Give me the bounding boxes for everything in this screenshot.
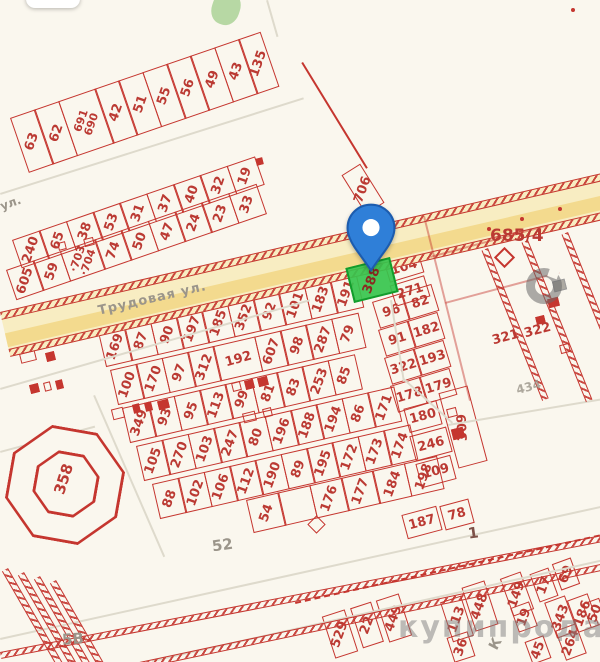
parcel-number: 32 xyxy=(208,174,228,196)
parcel-number: 33 xyxy=(237,193,257,215)
map-control-button[interactable] xyxy=(26,0,80,8)
parcel-number: 105 xyxy=(142,445,165,476)
street-name-short: ул. xyxy=(0,193,23,213)
building xyxy=(19,350,37,364)
parcel-number: 607 xyxy=(260,336,283,367)
parcel-number: 195 xyxy=(312,448,335,479)
parcel-number: 85 xyxy=(335,364,355,386)
map-dot xyxy=(520,217,524,221)
parcel-number: 79 xyxy=(338,322,358,344)
parcel-number: 80 xyxy=(246,426,266,448)
parcel-number: 180 xyxy=(408,406,438,428)
parcel-number: 62 xyxy=(46,122,66,144)
parcel-number: 103 xyxy=(193,433,216,464)
parcel-number: 24 xyxy=(184,211,204,233)
parcel-number: 78 xyxy=(446,505,467,524)
map-canvas[interactable]: Трудовая ул. 685/4 321 322 434 358 ул. 5… xyxy=(0,0,600,662)
parcel-number: 49 xyxy=(202,68,222,90)
parcel-number: 197 xyxy=(181,313,204,344)
parcel-strip: 6362691690425155564943135 xyxy=(10,32,279,173)
parcel-number: 37 xyxy=(155,192,175,214)
parcel-number: 113 xyxy=(205,389,228,420)
building xyxy=(29,383,40,394)
parcel-number: 176 xyxy=(318,483,341,514)
parcel-number: 177 xyxy=(349,476,372,507)
parcel-number: 95 xyxy=(181,399,201,421)
parcel-number: 89 xyxy=(288,458,308,480)
parcel-number: 196 xyxy=(270,415,293,446)
parcel-number: 59 xyxy=(42,260,62,282)
parcel-number: 83 xyxy=(283,376,303,398)
parcel-number: 102 xyxy=(184,477,207,508)
parcel-number: 43 xyxy=(226,60,246,82)
parcel-number: 182 xyxy=(411,319,441,341)
parcel-number: 193 xyxy=(417,347,447,369)
parcel-number: 56 xyxy=(178,76,198,98)
parcel-number: 192 xyxy=(223,348,253,370)
parcel-number: 106 xyxy=(209,471,232,502)
parcel-number: 247 xyxy=(219,427,242,458)
parcel-number: 47 xyxy=(157,221,177,243)
parcel-number: 190 xyxy=(261,459,284,490)
parcel-label-434: 434 xyxy=(515,377,543,397)
parcel-number: 55 xyxy=(154,85,174,107)
parcel-number: 605 xyxy=(14,265,37,296)
building xyxy=(111,407,125,421)
path-line xyxy=(266,0,278,37)
diamond-marker xyxy=(494,247,515,268)
parcel-number: 88 xyxy=(160,487,180,509)
parcel-number: 246 xyxy=(416,433,446,455)
parcel-number: 170 xyxy=(142,363,165,394)
parcel-number: 42 xyxy=(106,101,126,123)
parcel-number: 19 xyxy=(235,165,255,187)
parcel-number: 51 xyxy=(130,93,150,115)
parcel-number: 183 xyxy=(309,284,332,315)
parcel-number: 109 xyxy=(421,461,451,483)
parcel-number: 100 xyxy=(116,369,139,400)
parcel-number: 63 xyxy=(22,130,42,152)
parcel-number: 40 xyxy=(182,183,202,205)
parcel-number: 98 xyxy=(287,334,307,356)
parcel-number: 187 xyxy=(407,512,437,534)
location-pin-icon[interactable] xyxy=(346,203,396,273)
watermark-text: купипродай xyxy=(398,610,600,645)
parcel-label-321: 321 xyxy=(491,327,521,349)
parcel-number: 287 xyxy=(311,324,334,355)
parcel-number: 74 xyxy=(103,239,123,261)
parcel-number: 135 xyxy=(247,48,270,79)
road-number-label: 1 xyxy=(467,523,480,542)
parcel-number: 54 xyxy=(256,502,276,524)
parcel-number: 86 xyxy=(349,402,369,424)
parcel-number: 172 xyxy=(337,442,360,473)
parcel-number: 194 xyxy=(321,404,344,435)
parcel-label-322: 322 xyxy=(523,320,553,342)
parcel-number: 184 xyxy=(381,468,404,499)
watermark-logo-icon xyxy=(526,268,562,304)
parcel-number: 271 xyxy=(395,280,425,302)
parcel-label-685-4: 685/4 xyxy=(490,226,544,246)
parcel-number: 174 xyxy=(389,430,412,461)
building xyxy=(43,381,52,391)
parcel-number: 112 xyxy=(235,465,258,496)
map-dot xyxy=(571,8,575,12)
vegetation-patch xyxy=(207,0,244,28)
parcel-number: 270 xyxy=(168,439,191,470)
parcel-cell: 187 xyxy=(401,506,442,539)
label-5v: 5В xyxy=(61,629,84,648)
parcel-number: 53 xyxy=(101,211,121,233)
parcel-number: 253 xyxy=(307,366,330,397)
parcel-number: 23 xyxy=(210,202,230,224)
building xyxy=(45,351,56,362)
label-52: 52 xyxy=(211,535,234,556)
map-dot xyxy=(558,207,562,211)
parcel-number: 188 xyxy=(296,410,319,441)
parcel-number: 97 xyxy=(169,361,189,383)
parcel-number: 312 xyxy=(193,351,216,382)
parcel-number: 173 xyxy=(363,436,386,467)
parcel-number: 50 xyxy=(130,230,150,252)
building xyxy=(255,157,263,165)
parcel-number: 31 xyxy=(128,201,148,223)
building xyxy=(55,379,64,389)
parcel-number: 706 xyxy=(351,174,374,205)
boundary-line xyxy=(301,62,367,169)
